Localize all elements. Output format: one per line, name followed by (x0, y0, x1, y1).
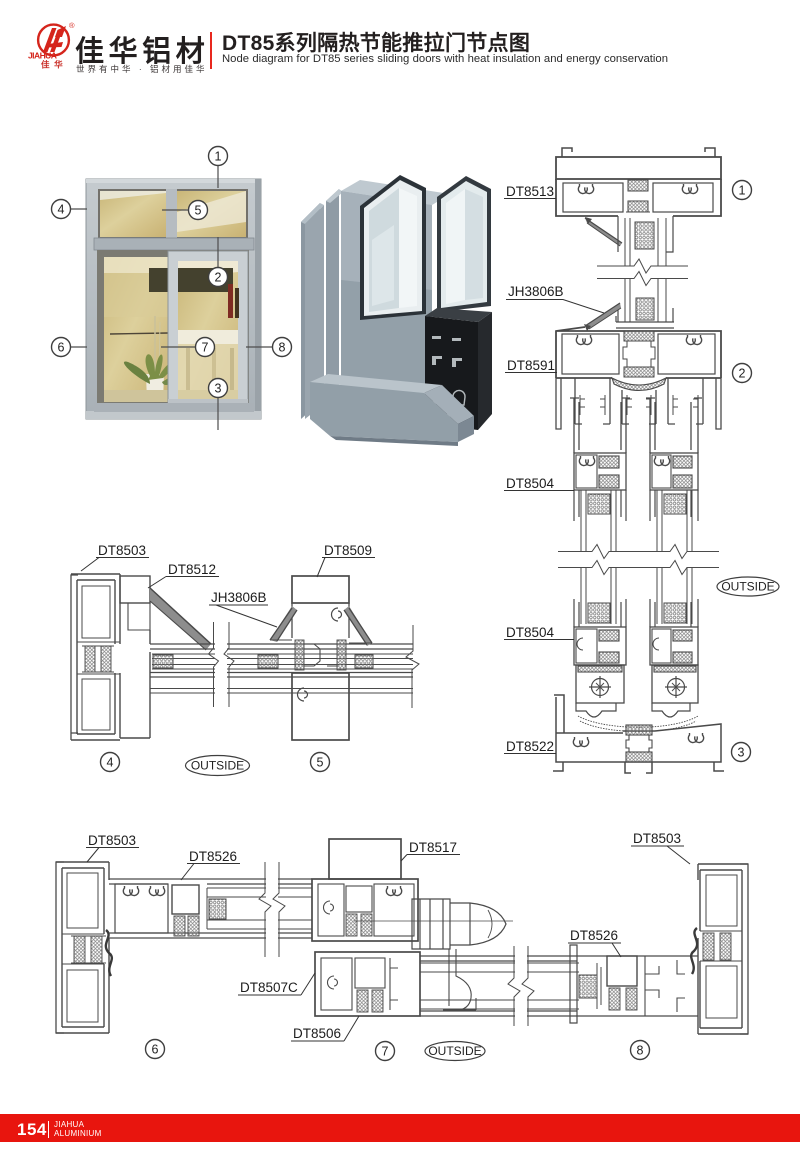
svg-text:DT8522: DT8522 (506, 739, 554, 754)
svg-text:DT8509: DT8509 (324, 543, 372, 558)
svg-text:4: 4 (107, 756, 114, 770)
svg-text:DT8512: DT8512 (168, 562, 216, 577)
svg-text:DT8503: DT8503 (633, 831, 681, 846)
svg-text:DT8513: DT8513 (506, 184, 554, 199)
svg-text:OUTSIDE: OUTSIDE (428, 1044, 481, 1058)
svg-text:DT8506: DT8506 (293, 1026, 341, 1041)
svg-text:2: 2 (739, 367, 746, 381)
svg-text:DT8526: DT8526 (189, 849, 237, 864)
svg-text:5: 5 (317, 756, 324, 770)
svg-text:7: 7 (202, 341, 209, 355)
svg-text:DT8517: DT8517 (409, 840, 457, 855)
svg-text:JH3806B: JH3806B (211, 590, 267, 605)
svg-text:JH3806B: JH3806B (508, 284, 564, 299)
svg-text:DT8507C: DT8507C (240, 980, 298, 995)
svg-text:OUTSIDE: OUTSIDE (191, 759, 244, 773)
svg-text:1: 1 (215, 150, 222, 164)
svg-text:4: 4 (58, 203, 65, 217)
svg-text:OUTSIDE: OUTSIDE (721, 580, 774, 594)
svg-text:1: 1 (739, 184, 746, 198)
svg-text:5: 5 (195, 204, 202, 218)
svg-text:3: 3 (215, 382, 222, 396)
svg-text:8: 8 (279, 341, 286, 355)
svg-text:7: 7 (382, 1045, 389, 1059)
svg-text:6: 6 (58, 341, 65, 355)
svg-text:3: 3 (738, 746, 745, 760)
svg-text:DT8504: DT8504 (506, 625, 555, 640)
svg-text:DT8503: DT8503 (88, 833, 136, 848)
svg-text:8: 8 (637, 1044, 644, 1058)
svg-text:2: 2 (215, 271, 222, 285)
svg-text:DT8503: DT8503 (98, 543, 146, 558)
svg-text:6: 6 (152, 1043, 159, 1057)
svg-text:DT8591: DT8591 (507, 358, 555, 373)
svg-text:DT8526: DT8526 (570, 928, 618, 943)
svg-text:DT8504: DT8504 (506, 476, 555, 491)
